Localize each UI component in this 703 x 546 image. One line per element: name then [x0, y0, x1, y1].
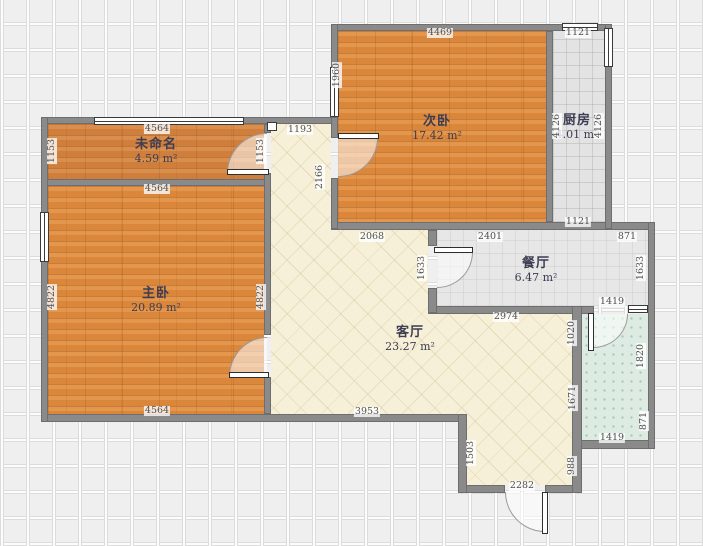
wall: [331, 178, 338, 229]
window-kitchen-right[interactable]: [604, 28, 613, 67]
window-second-left[interactable]: [330, 67, 339, 117]
door-leaf-unnamed[interactable]: [227, 169, 269, 175]
floorplan-canvas[interactable]: 未命名 4.59 m² 主卧 20.89 m² 次卧 17.42 m² 厨房 4…: [0, 0, 703, 546]
wall: [264, 377, 271, 414]
room-floor-master-bedroom[interactable]: [48, 186, 264, 414]
door-leaf-bathroom[interactable]: [588, 313, 594, 351]
window-kitchen-top[interactable]: [562, 23, 598, 31]
door-leaf-entry[interactable]: [542, 492, 548, 534]
room-floor-second-bedroom[interactable]: [338, 31, 546, 222]
wall: [41, 414, 467, 422]
door-leaf-master[interactable]: [229, 372, 269, 378]
wall: [458, 414, 467, 493]
wall: [331, 117, 338, 138]
wall: [428, 288, 437, 313]
wall: [331, 24, 338, 67]
wall: [41, 117, 48, 422]
window-bathroom-top[interactable]: [628, 305, 648, 313]
wall: [546, 31, 553, 222]
wall: [428, 306, 594, 314]
wall: [572, 440, 655, 449]
wall: [264, 173, 271, 335]
wall: [572, 306, 582, 493]
door-leaf-dining[interactable]: [434, 247, 473, 253]
window-unnamed-top[interactable]: [94, 117, 244, 125]
door-leaf-second[interactable]: [338, 133, 379, 139]
wall: [648, 222, 655, 449]
wall: [428, 230, 437, 246]
column-corridor-top: [267, 122, 277, 131]
door-arc-entry[interactable]: [505, 492, 545, 532]
room-floor-kitchen[interactable]: [553, 31, 605, 222]
window-master-left[interactable]: [40, 212, 49, 262]
wall: [41, 179, 271, 186]
